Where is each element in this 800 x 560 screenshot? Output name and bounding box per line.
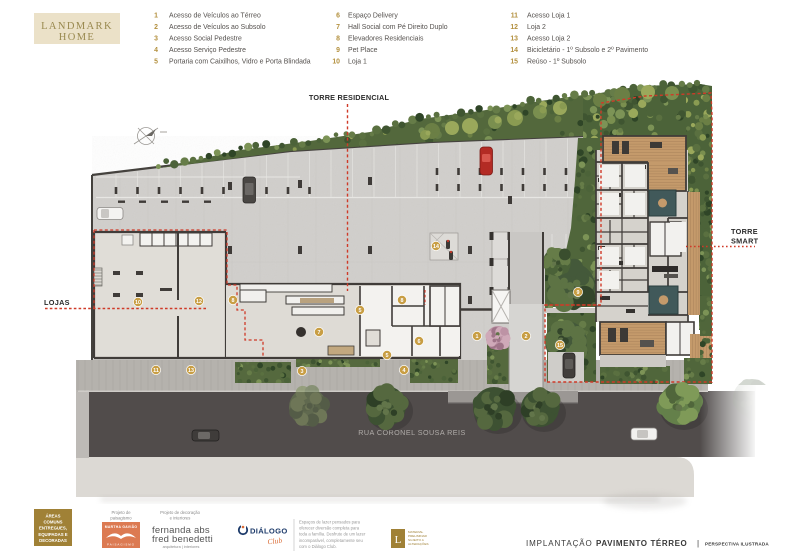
svg-text:LANDMARK: LANDMARK bbox=[41, 21, 113, 32]
svg-text:5: 5 bbox=[359, 308, 362, 314]
svg-text:10: 10 bbox=[332, 59, 340, 66]
svg-text:15: 15 bbox=[557, 343, 563, 349]
svg-text:Loja 1: Loja 1 bbox=[348, 59, 367, 66]
svg-text:Acesso de Veículos ao Térreo: Acesso de Veículos ao Térreo bbox=[169, 13, 261, 20]
svg-text:1: 1 bbox=[476, 334, 479, 340]
svg-text:ÁREAS: ÁREAS bbox=[45, 514, 60, 519]
svg-text:13: 13 bbox=[510, 36, 518, 43]
svg-text:Acesso Social Pedestre: Acesso Social Pedestre bbox=[169, 36, 242, 43]
svg-text:Pet Place: Pet Place bbox=[348, 47, 378, 54]
svg-text:6: 6 bbox=[336, 13, 340, 20]
svg-text:10: 10 bbox=[135, 300, 141, 306]
svg-text:6: 6 bbox=[418, 339, 421, 345]
svg-text:Espaço Delivery: Espaço Delivery bbox=[348, 13, 398, 20]
svg-text:SMART: SMART bbox=[731, 237, 759, 246]
svg-text:4: 4 bbox=[154, 47, 158, 54]
svg-text:fred benedetti: fred benedetti bbox=[152, 534, 213, 545]
svg-text:7: 7 bbox=[318, 330, 321, 336]
svg-text:arquitetura | interiores: arquitetura | interiores bbox=[163, 545, 200, 549]
svg-text:Portaria com Caixilhos, Vidro: Portaria com Caixilhos, Vidro e Porta Bl… bbox=[169, 59, 311, 66]
svg-text:PAISAGISMO: PAISAGISMO bbox=[107, 543, 135, 547]
svg-text:Projeto de: Projeto de bbox=[111, 510, 131, 515]
svg-text:Loja 2: Loja 2 bbox=[527, 24, 546, 31]
svg-text:DIÁLOGO: DIÁLOGO bbox=[250, 527, 288, 536]
svg-text:HOME: HOME bbox=[59, 32, 96, 43]
svg-text:EQUIPADAS E: EQUIPADAS E bbox=[38, 532, 67, 537]
svg-text:8: 8 bbox=[336, 36, 340, 43]
svg-text:Acesso Serviço Pedestre: Acesso Serviço Pedestre bbox=[169, 47, 246, 54]
svg-text:PAVIMENTO TÉRREO: PAVIMENTO TÉRREO bbox=[596, 539, 687, 548]
svg-text:Acesso Loja 2: Acesso Loja 2 bbox=[527, 36, 570, 43]
svg-text:12: 12 bbox=[510, 24, 518, 31]
svg-text:5: 5 bbox=[386, 353, 389, 359]
svg-text:IMPLANTAÇÃO: IMPLANTAÇÃO bbox=[526, 539, 593, 548]
svg-text:PERSPECTIVA ILUSTRADA: PERSPECTIVA ILUSTRADA bbox=[705, 542, 769, 547]
svg-text:RUA CORONEL SOUSA REIS: RUA CORONEL SOUSA REIS bbox=[358, 428, 466, 437]
svg-text:3: 3 bbox=[154, 36, 158, 43]
svg-text:13: 13 bbox=[188, 368, 194, 374]
svg-text:paisagismo: paisagismo bbox=[110, 516, 132, 521]
svg-text:Club: Club bbox=[267, 536, 283, 547]
svg-text:1: 1 bbox=[154, 13, 158, 20]
svg-text:ALTERAÇÕES: ALTERAÇÕES bbox=[408, 541, 429, 546]
svg-text:4: 4 bbox=[403, 368, 406, 374]
svg-text:Reúso - 1º Subsolo: Reúso - 1º Subsolo bbox=[527, 59, 586, 66]
svg-text:Espaços de lazer pensados para: Espaços de lazer pensados para bbox=[299, 520, 361, 525]
svg-text:7: 7 bbox=[336, 24, 340, 31]
svg-text:incomparável, completamente se: incomparável, completamente seu bbox=[299, 538, 363, 543]
svg-text:Hall Social com Pé Direito Dup: Hall Social com Pé Direito Duplo bbox=[348, 24, 448, 31]
svg-text:LOJAS: LOJAS bbox=[44, 298, 70, 307]
svg-text:e interiores: e interiores bbox=[170, 516, 191, 521]
svg-text:5: 5 bbox=[154, 59, 158, 66]
svg-text:3: 3 bbox=[301, 369, 304, 375]
svg-text:ENTREGUES,: ENTREGUES, bbox=[39, 526, 67, 531]
svg-text:12: 12 bbox=[196, 299, 202, 305]
svg-text:Bicicletário - 1º Subsolo e 2º: Bicicletário - 1º Subsolo e 2º Pavimento bbox=[527, 47, 648, 54]
svg-text:Elevadores Residenciais: Elevadores Residenciais bbox=[348, 36, 424, 43]
svg-text:com o Diálogo Club.: com o Diálogo Club. bbox=[299, 544, 337, 549]
svg-text:2: 2 bbox=[154, 24, 158, 31]
svg-text:2: 2 bbox=[525, 334, 528, 340]
svg-text:8: 8 bbox=[401, 298, 404, 304]
svg-text:Acesso Loja 1: Acesso Loja 1 bbox=[527, 13, 570, 20]
svg-text:toda a família. Desfrute de um: toda a família. Desfrute de um lazer bbox=[299, 532, 366, 537]
svg-text:9: 9 bbox=[577, 290, 580, 296]
svg-text:Acesso de Veículos ao Subsolo: Acesso de Veículos ao Subsolo bbox=[169, 24, 266, 31]
svg-text:11: 11 bbox=[153, 368, 159, 374]
svg-text:TORRE RESIDENCIAL: TORRE RESIDENCIAL bbox=[309, 93, 390, 102]
svg-text:DECORADAS: DECORADAS bbox=[39, 538, 67, 543]
svg-text:L: L bbox=[395, 534, 402, 546]
svg-text:15: 15 bbox=[510, 59, 518, 66]
svg-text:TORRE: TORRE bbox=[731, 227, 758, 236]
svg-text:8: 8 bbox=[232, 298, 235, 304]
svg-text:|: | bbox=[697, 539, 699, 548]
svg-text:Projeto de decoração: Projeto de decoração bbox=[160, 510, 200, 515]
svg-text:14: 14 bbox=[510, 47, 518, 54]
svg-text:oferecer diversão completa par: oferecer diversão completa para bbox=[299, 526, 360, 531]
svg-text:11: 11 bbox=[511, 13, 518, 20]
svg-text:COMUNS: COMUNS bbox=[43, 520, 62, 525]
svg-text:14: 14 bbox=[433, 244, 439, 250]
svg-text:9: 9 bbox=[336, 47, 340, 54]
svg-text:MARTHA GAVIÃO: MARTHA GAVIÃO bbox=[105, 524, 138, 529]
